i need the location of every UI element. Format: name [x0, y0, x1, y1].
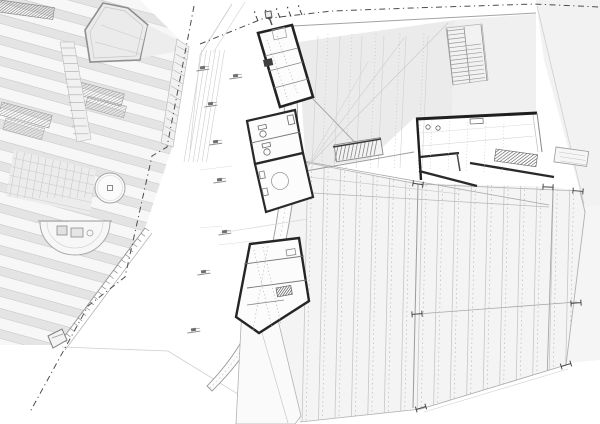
apse-fixture-2	[71, 228, 83, 237]
circular-feature	[95, 173, 125, 203]
site-plan-drawing	[0, 0, 600, 424]
apse-fixture-1	[57, 226, 67, 235]
site-plan	[0, 0, 600, 424]
gallery-antenna-base	[265, 11, 272, 18]
